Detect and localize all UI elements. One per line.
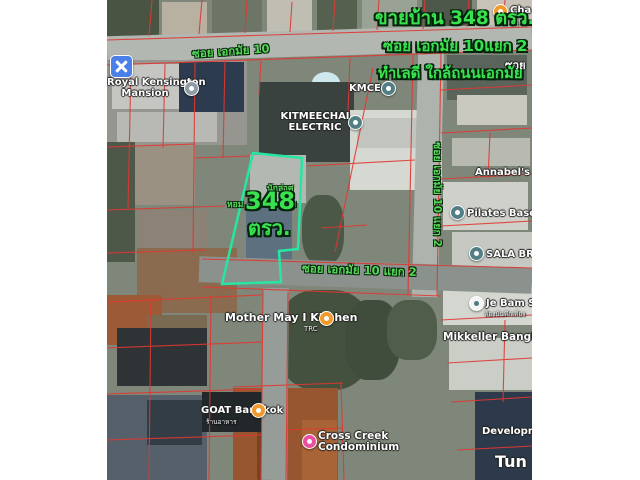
building-solar-roof <box>117 328 207 386</box>
poi-label-line: ELECTRIC <box>279 122 351 133</box>
building <box>267 0 312 34</box>
vegetation <box>107 142 135 262</box>
parcel-area-unit: ตรว. <box>248 212 291 244</box>
satellite-map[interactable]: ซอย เอกมัย 10 ซอย เอกมัย 10 แยก 2 ซอย เอ… <box>107 0 532 480</box>
poi-label-line: KITMEECHAI <box>279 111 351 122</box>
building-annabels <box>452 138 530 166</box>
building <box>117 112 217 142</box>
caption-line-3: ทำเลดี ใกล้ถนนเอกมัย <box>378 61 523 85</box>
building <box>135 145 195 205</box>
caption-line-1: ขายบ้าน 348 ตรว. <box>375 4 532 33</box>
restaurant-marker-mother-may[interactable] <box>319 311 334 326</box>
parcel-area-value: 348 <box>245 187 295 215</box>
poi-sublabel-goat: ร้านอาหาร <box>206 417 237 427</box>
hardware-store-icon[interactable] <box>110 55 133 78</box>
caption-line-2: ซอย เอกมัย 10แยก 2 <box>383 34 527 58</box>
lodging-marker-cross-creek[interactable] <box>302 434 317 449</box>
generic-marker-pilates[interactable] <box>450 205 465 220</box>
generic-marker-kitmeechai[interactable] <box>348 115 363 130</box>
poi-label-cross-creek[interactable]: Cross Creek Condominium <box>318 431 399 453</box>
poi-label-goat[interactable]: GOAT Bangkok <box>201 405 283 416</box>
poi-label-royal-kensington[interactable]: Royal Kensington Mansion <box>107 77 183 99</box>
poi-label-tun[interactable]: Tun <box>495 456 527 467</box>
vegetation <box>212 0 262 36</box>
poi-label-je-bam[interactable]: Je Bam Stu <box>486 298 532 309</box>
generic-marker-je-bam[interactable] <box>469 296 484 311</box>
building <box>457 95 527 125</box>
generic-marker-sala[interactable] <box>469 246 484 261</box>
vegetation <box>302 195 344 265</box>
lodging-marker-royal-kensington[interactable] <box>184 81 199 96</box>
vegetation <box>387 300 437 360</box>
poi-label-pilates[interactable]: Pilates Base <box>467 208 532 219</box>
building <box>147 400 202 445</box>
building <box>162 2 207 36</box>
poi-label-mikkeller[interactable]: Mikkeller Bangkok <box>443 332 532 343</box>
restaurant-marker-goat[interactable] <box>251 403 266 418</box>
parcel-underlying-label-left: หอม <box>227 197 243 211</box>
poi-sublabel-mother-may: TRC <box>304 325 318 333</box>
poi-label-kmce[interactable]: KMCE <box>349 83 381 94</box>
screenshot: ซอย เอกมัย 10 ซอย เอกมัย 10 แยก 2 ซอย เอ… <box>0 0 640 480</box>
poi-label-line: Condominium <box>318 442 399 453</box>
poi-label-line: Mansion <box>107 88 183 99</box>
poi-label-development[interactable]: Developme <box>482 426 532 437</box>
poi-label-mother-may[interactable]: Mother May I Kitchen <box>225 312 357 323</box>
poi-label-annabels[interactable]: Annabel's Nu <box>475 167 532 178</box>
poi-sublabel-je-bam: ห้องบันทึกเสียง <box>484 309 525 319</box>
poi-label-line: Royal Kensington <box>107 77 183 88</box>
street-label-soi-ekkamai-10-yaek-2-vertical: ซอย เอกมัย 10 แยก 2 <box>429 107 446 282</box>
building-mikkeller <box>449 338 532 390</box>
poi-label-sala[interactable]: SALA BRAN <box>486 249 532 260</box>
poi-label-kitmeechai[interactable]: KITMEECHAI ELECTRIC <box>279 111 351 133</box>
